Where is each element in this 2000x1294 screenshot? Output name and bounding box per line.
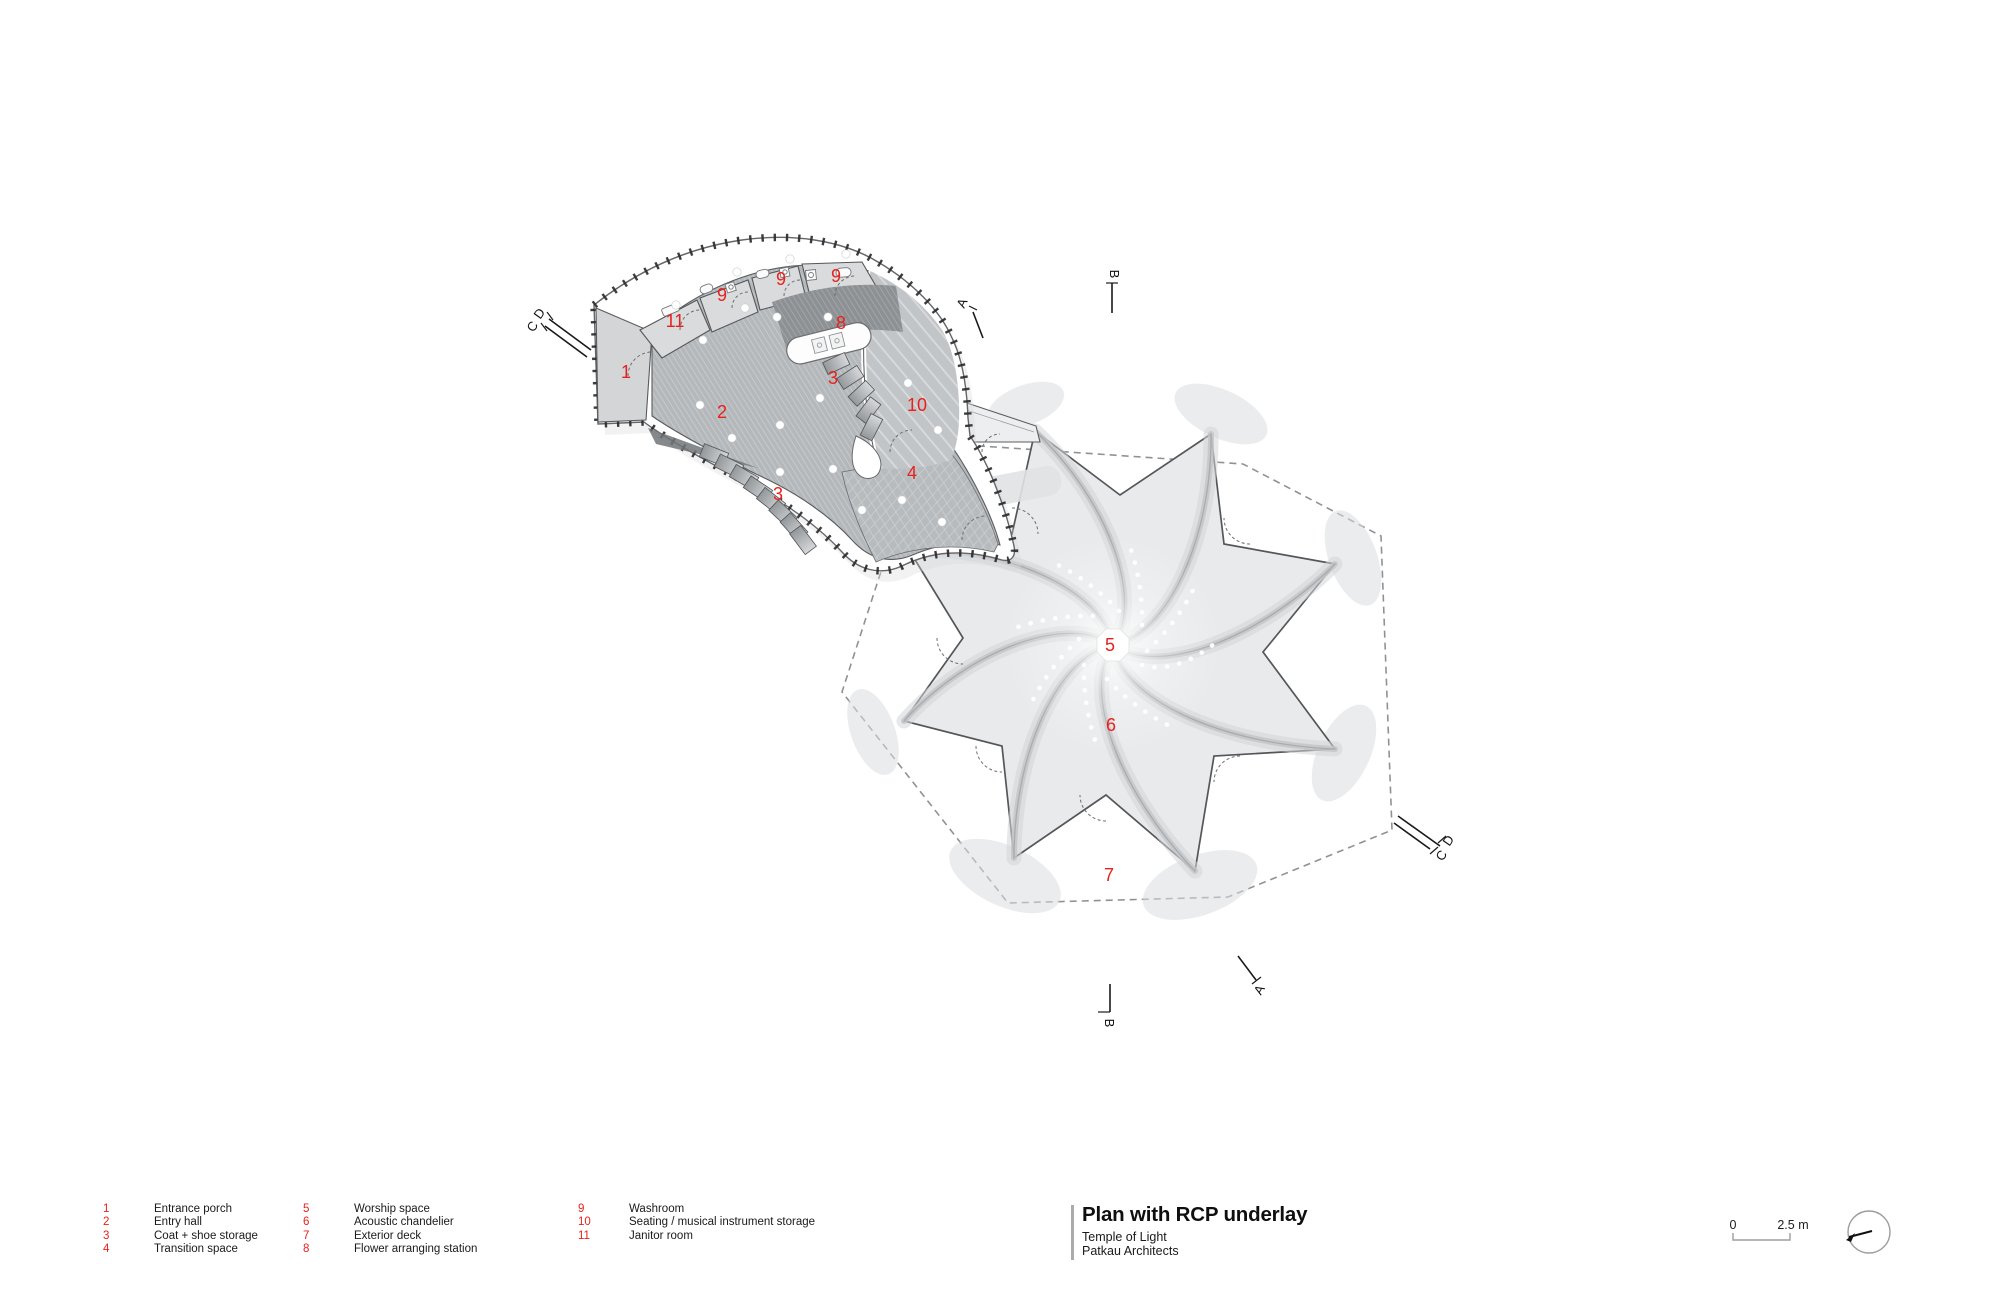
legend-label: Flower arranging station — [354, 1243, 477, 1256]
label-exterior-deck: 7 — [1104, 865, 1114, 885]
section-letter-d-right: D — [1439, 832, 1457, 848]
legend-number: 2 — [103, 1216, 154, 1229]
label-storage-room: 10 — [907, 395, 927, 415]
label-flower-station: 8 — [836, 313, 846, 333]
section-letter-d-left: D — [530, 305, 548, 321]
legend-label: Entrance porch — [154, 1203, 232, 1216]
legend-number: 4 — [103, 1243, 154, 1256]
legend-label: Exterior deck — [354, 1230, 421, 1243]
legend-item: 5Worship space — [303, 1203, 477, 1216]
legend-item: 11Janitor room — [578, 1230, 815, 1243]
section-marker-a-top — [969, 306, 983, 338]
scale-bar: 0 2.5 m — [1730, 1218, 1809, 1240]
legend-label: Coat + shoe storage — [154, 1230, 258, 1243]
legend-item: 2Entry hall — [103, 1216, 258, 1229]
legend-number: 3 — [103, 1230, 154, 1243]
legend-item: 9Washroom — [578, 1203, 815, 1216]
label-washroom-1: 9 — [717, 285, 727, 305]
label-acoustic-chandelier: 6 — [1106, 715, 1116, 735]
legend-label: Worship space — [354, 1203, 430, 1216]
label-washroom-2: 9 — [776, 269, 786, 289]
entry-building — [594, 237, 1022, 581]
label-washroom-3: 9 — [831, 266, 841, 286]
section-letter-c-right: C — [1432, 847, 1450, 863]
title-rule — [1071, 1205, 1074, 1260]
legend-label: Washroom — [629, 1203, 684, 1216]
legend-label: Acoustic chandelier — [354, 1216, 454, 1229]
legend-item: 8Flower arranging station — [303, 1243, 477, 1256]
section-marker-b-bottom — [1098, 984, 1110, 1012]
label-transition-space: 4 — [907, 463, 917, 483]
section-letter-b-bottom: B — [1102, 1019, 1117, 1028]
north-arrow-icon — [1846, 1211, 1890, 1253]
legend-item: 3Coat + shoe storage — [103, 1230, 258, 1243]
architectural-sheet: D C A B D C B A 1 2 3 3 4 5 6 7 8 9 9 9 … — [0, 0, 2000, 1294]
legend-number: 7 — [303, 1230, 354, 1243]
label-coat-storage-upper: 3 — [828, 368, 838, 388]
legend-item: 6Acoustic chandelier — [303, 1216, 477, 1229]
section-letter-a-bottom: A — [1250, 982, 1267, 997]
section-marker-dc-left — [541, 312, 591, 357]
legend-label: Seating / musical instrument storage — [629, 1216, 815, 1229]
legend-number: 10 — [578, 1216, 629, 1229]
legend-label: Entry hall — [154, 1216, 202, 1229]
section-letter-b-top: B — [1107, 270, 1122, 279]
label-entry-hall: 2 — [717, 402, 727, 422]
section-letter-c-left: C — [523, 318, 541, 334]
architect-name: Patkau Architects — [1082, 1244, 1179, 1258]
legend-column-1: 1Entrance porch 2Entry hall 3Coat + shoe… — [103, 1203, 258, 1257]
legend-column-2: 5Worship space 6Acoustic chandelier 7Ext… — [303, 1203, 477, 1257]
section-marker-a-bottom — [1238, 956, 1261, 984]
label-entrance-porch: 1 — [621, 362, 631, 382]
legend-label: Janitor room — [629, 1230, 693, 1243]
label-worship-space: 5 — [1105, 635, 1115, 655]
label-janitor-room: 11 — [666, 311, 685, 331]
project-credits: Temple of Light Patkau Architects — [1082, 1230, 1179, 1258]
sheet-title: Plan with RCP underlay — [1082, 1203, 1307, 1227]
legend-item: 4Transition space — [103, 1243, 258, 1256]
label-coat-storage-lower: 3 — [773, 484, 783, 504]
legend-item: 1Entrance porch — [103, 1203, 258, 1216]
legend-number: 9 — [578, 1203, 629, 1216]
scale-max: 2.5 m — [1777, 1218, 1808, 1232]
scale-zero: 0 — [1730, 1218, 1737, 1232]
legend-number: 11 — [578, 1230, 629, 1243]
legend-number: 5 — [303, 1203, 354, 1216]
legend-item: 7Exterior deck — [303, 1230, 477, 1243]
section-marker-b-top — [1106, 283, 1118, 313]
legend-number: 1 — [103, 1203, 154, 1216]
legend-number: 8 — [303, 1243, 354, 1256]
project-name: Temple of Light — [1082, 1230, 1179, 1244]
legend-number: 6 — [303, 1216, 354, 1229]
legend-item: 10Seating / musical instrument storage — [578, 1216, 815, 1229]
legend-column-3: 9Washroom 10Seating / musical instrument… — [578, 1203, 815, 1243]
legend-label: Transition space — [154, 1243, 238, 1256]
section-letter-a-top: A — [953, 296, 970, 310]
plan-drawing: D C A B D C B A 1 2 3 3 4 5 6 7 8 9 9 9 … — [0, 0, 2000, 1294]
